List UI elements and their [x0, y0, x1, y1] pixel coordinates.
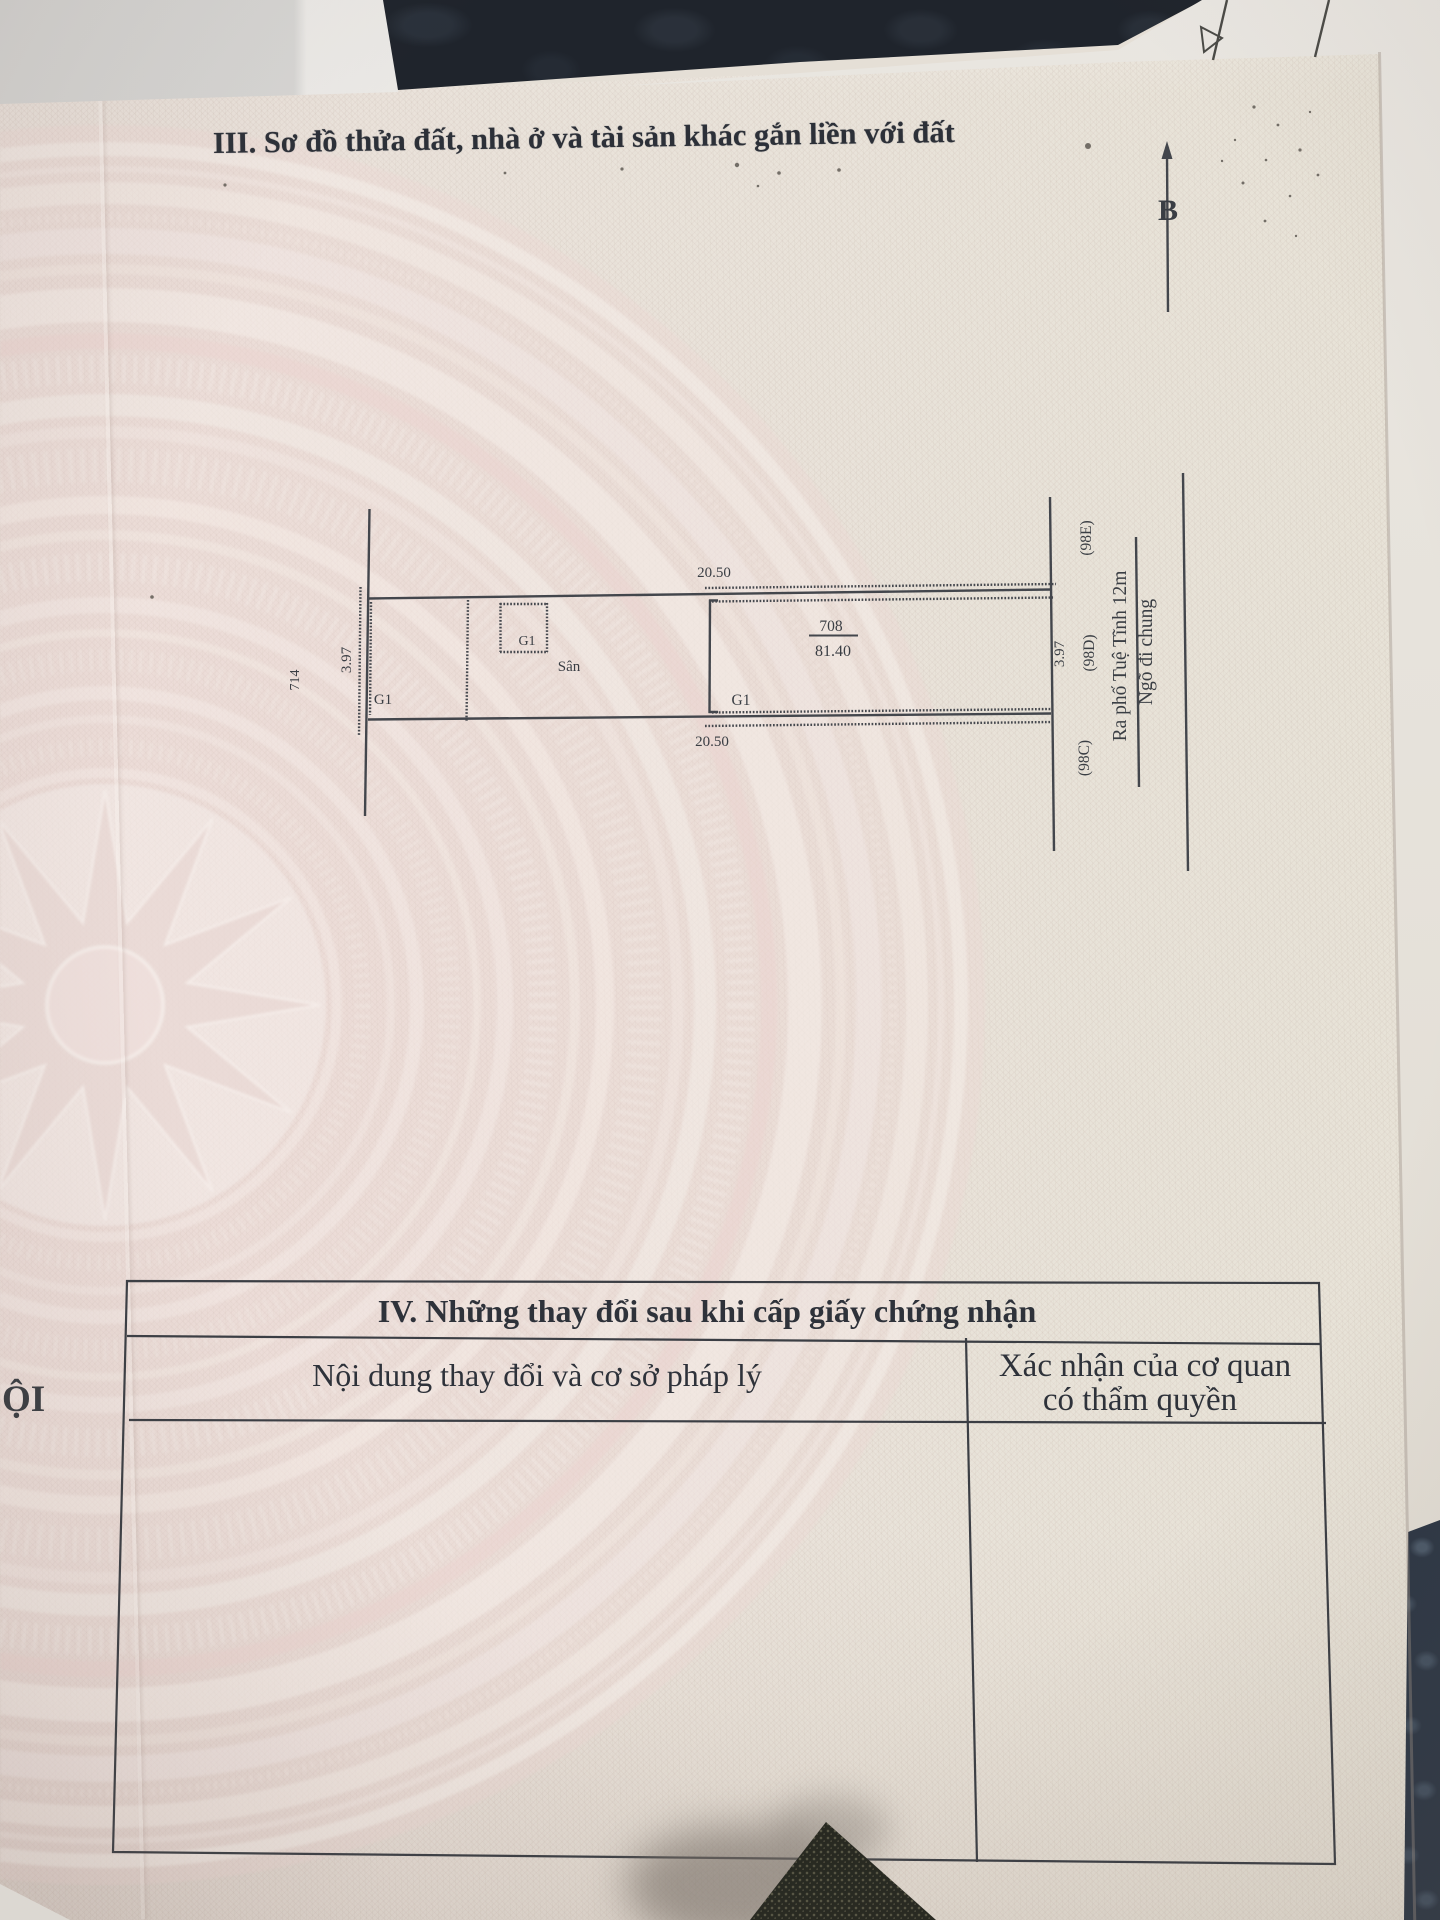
svg-text:Ra phố Tuệ Tĩnh 12m: Ra phố Tuệ Tĩnh 12m [1110, 571, 1131, 742]
svg-text:3.97: 3.97 [339, 646, 355, 673]
svg-text:(98D): (98D) [1081, 634, 1098, 671]
svg-text:(98C): (98C) [1076, 740, 1093, 776]
svg-text:có thẩm quyền: có thẩm quyền [1043, 1382, 1237, 1418]
svg-text:(98E): (98E) [1078, 520, 1095, 555]
svg-text:IV. Những thay đổi sau khi cấp: IV. Những thay đổi sau khi cấp giấy chứn… [378, 1293, 1037, 1329]
svg-text:3.97: 3.97 [1052, 640, 1068, 667]
svg-text:Ngõ đi chung: Ngõ đi chung [1136, 599, 1157, 705]
svg-text:20.50: 20.50 [695, 734, 729, 750]
svg-text:714: 714 [288, 670, 303, 691]
svg-text:Sân: Sân [558, 659, 581, 675]
svg-text:B: B [1158, 194, 1178, 227]
svg-text:81.40: 81.40 [815, 643, 851, 660]
svg-text:G1: G1 [374, 692, 392, 708]
svg-text:Xác nhận của cơ quan: Xác nhận của cơ quan [999, 1348, 1291, 1384]
svg-text:G1: G1 [518, 634, 535, 649]
svg-text:G1: G1 [732, 692, 751, 709]
svg-text:20.50: 20.50 [697, 565, 731, 581]
svg-text:708: 708 [819, 618, 843, 635]
svg-text:Nội dung thay đổi và cơ sở phá: Nội dung thay đổi và cơ sở pháp lý [312, 1357, 762, 1393]
